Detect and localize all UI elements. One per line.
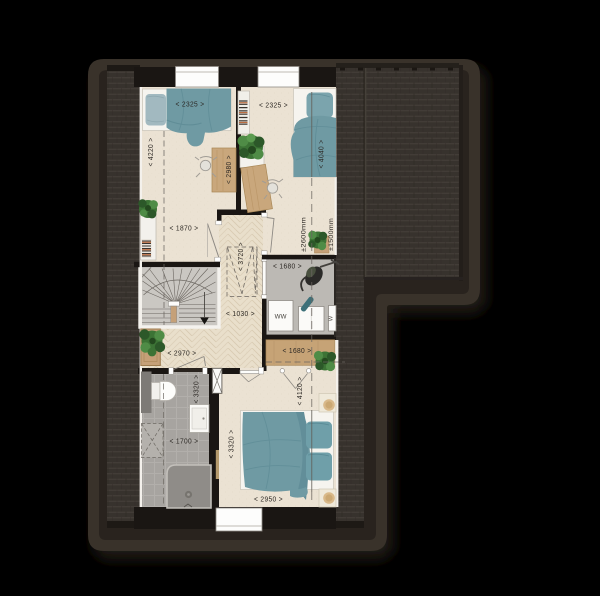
- svg-text:< 3320 >: < 3320 >: [227, 429, 236, 458]
- svg-text:< 1870 >: < 1870 >: [170, 223, 199, 232]
- svg-text:< 1680 >: < 1680 >: [273, 262, 302, 271]
- svg-text:< 4040 >: < 4040 >: [317, 139, 326, 168]
- svg-text:< 4220 >: < 4220 >: [146, 137, 155, 166]
- svg-text:< 2325 >: < 2325 >: [259, 100, 288, 109]
- svg-text:< 1700 >: < 1700 >: [170, 436, 199, 445]
- svg-text:< 3720 >: < 3720 >: [236, 242, 245, 271]
- svg-text:±1500mm: ±1500mm: [328, 218, 335, 251]
- svg-text:< 1680 >: < 1680 >: [283, 346, 312, 355]
- svg-text:±2600mm: ±2600mm: [301, 217, 308, 252]
- svg-text:< 2970 >: < 2970 >: [168, 349, 197, 358]
- svg-text:WW: WW: [275, 314, 287, 321]
- svg-text:< 1030 >: < 1030 >: [226, 309, 255, 318]
- svg-text:< 3320 >: < 3320 >: [192, 374, 201, 403]
- svg-text:< 4120 >: < 4120 >: [295, 376, 304, 405]
- svg-text:< 2950 >: < 2950 >: [254, 494, 283, 503]
- svg-text:< 2980 >: < 2980 >: [224, 155, 233, 184]
- svg-text:< 2325 >: < 2325 >: [176, 99, 205, 108]
- svg-text:W: W: [329, 315, 335, 321]
